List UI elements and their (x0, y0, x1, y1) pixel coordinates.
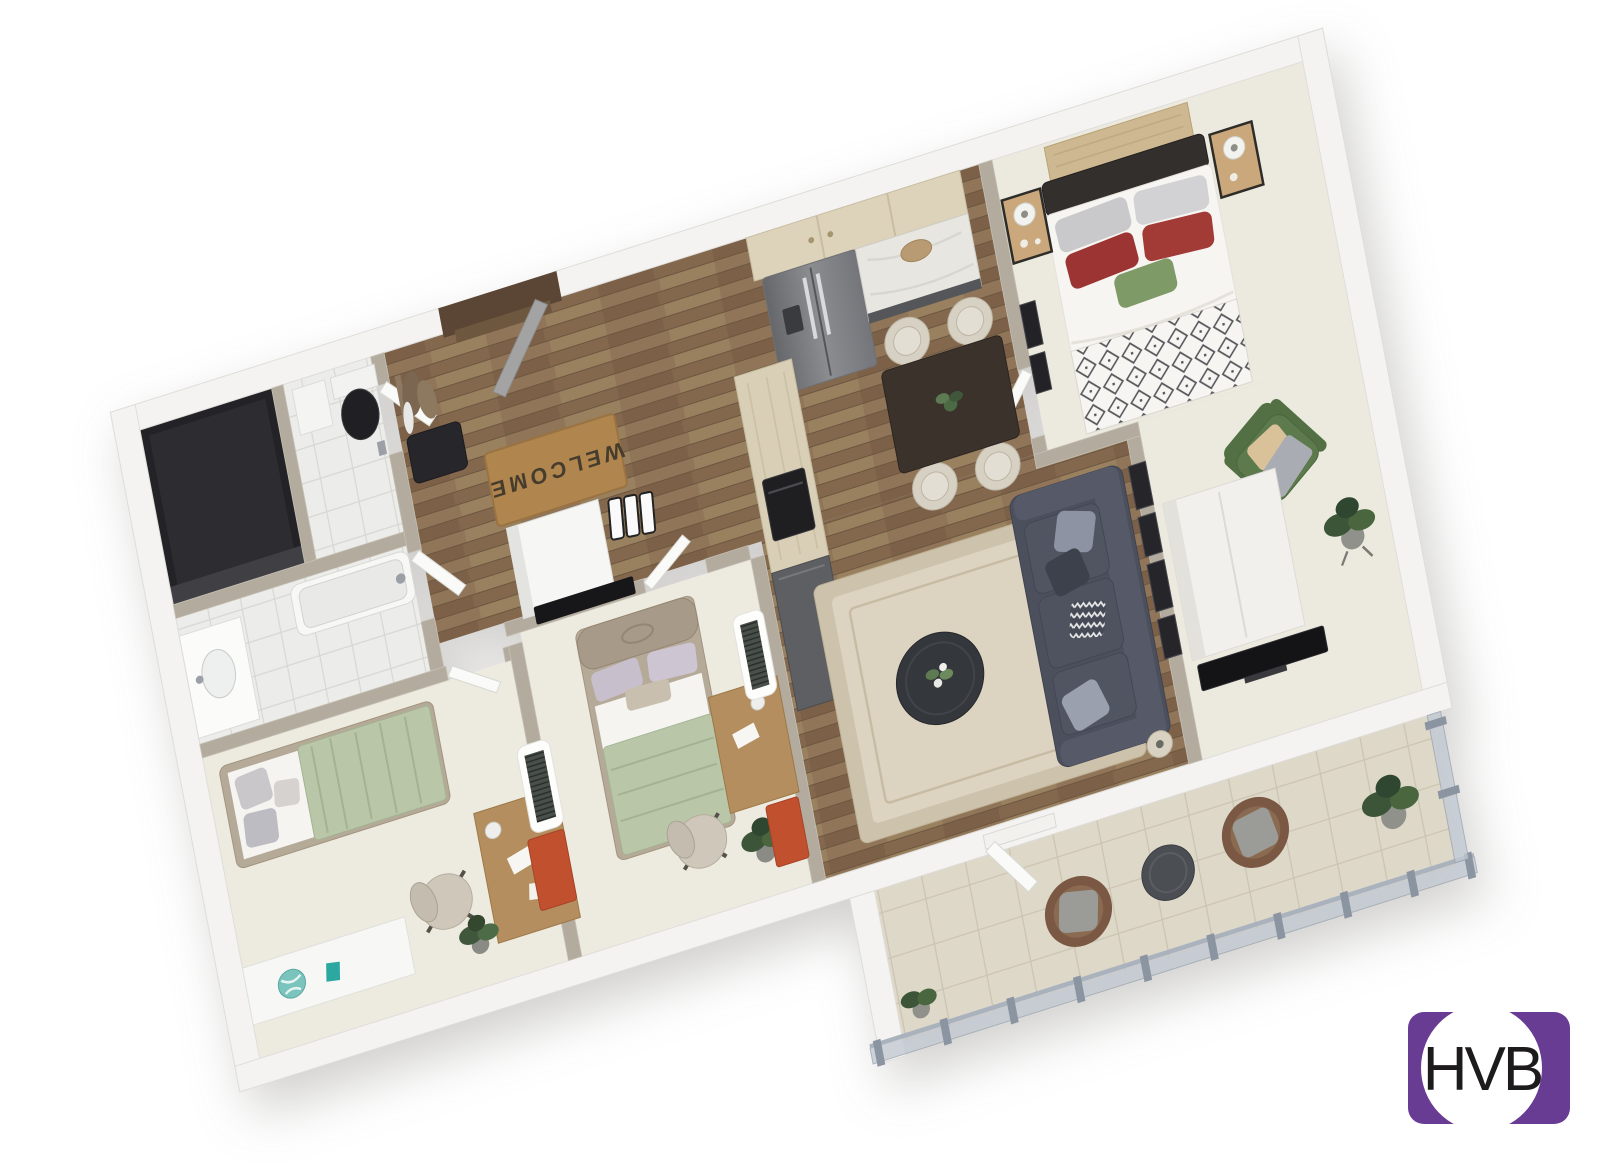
hvb-logo: HVB (1408, 1012, 1570, 1124)
hvb-logo-text: HVB (1408, 1014, 1556, 1124)
sofa-pillow-chevron (1069, 600, 1106, 639)
shelf-decor (326, 962, 340, 982)
single-bed-pillow-3 (274, 777, 301, 808)
floorplan-render: WELCOME (0, 0, 1600, 1173)
floorplan-svg: WELCOME (0, 0, 1600, 1173)
sofa-pillow-1 (1053, 511, 1096, 553)
chair-cushion (1059, 889, 1098, 934)
